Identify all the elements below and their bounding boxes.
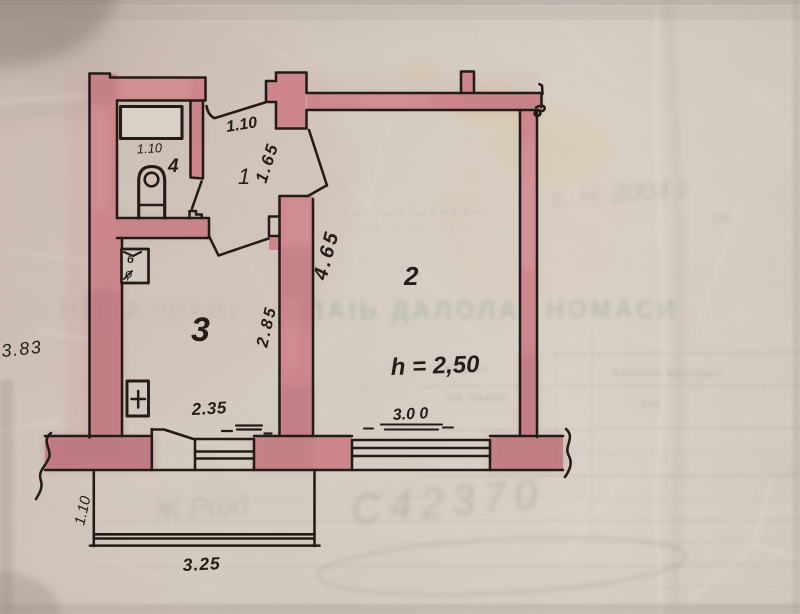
svg-text:1: 1 (238, 164, 250, 189)
svg-text:3.0 0: 3.0 0 (392, 405, 429, 424)
svg-text:пас: пас (712, 210, 733, 225)
svg-text:4: 4 (167, 156, 179, 177)
svg-text:Ахолиниг маълумот: Ахолиниг маълумот (612, 366, 723, 380)
svg-text:h = 2,50: h = 2,50 (390, 351, 480, 381)
svg-text:2: 2 (403, 261, 419, 291)
svg-text:Ж.Ршо́: Ж.Ршо́ (151, 489, 249, 528)
svg-text:3.83: 3.83 (0, 337, 43, 361)
svg-text:(кв. саним): (кв. саним) (446, 390, 507, 404)
svg-text:3.25: 3.25 (182, 553, 221, 575)
svg-text:1.10: 1.10 (136, 140, 163, 156)
svg-text:зам: зам (640, 396, 660, 410)
svg-text:2.35: 2.35 (190, 398, 227, 419)
svg-text:3: 3 (191, 311, 210, 349)
svg-text:б: б (127, 254, 135, 266)
